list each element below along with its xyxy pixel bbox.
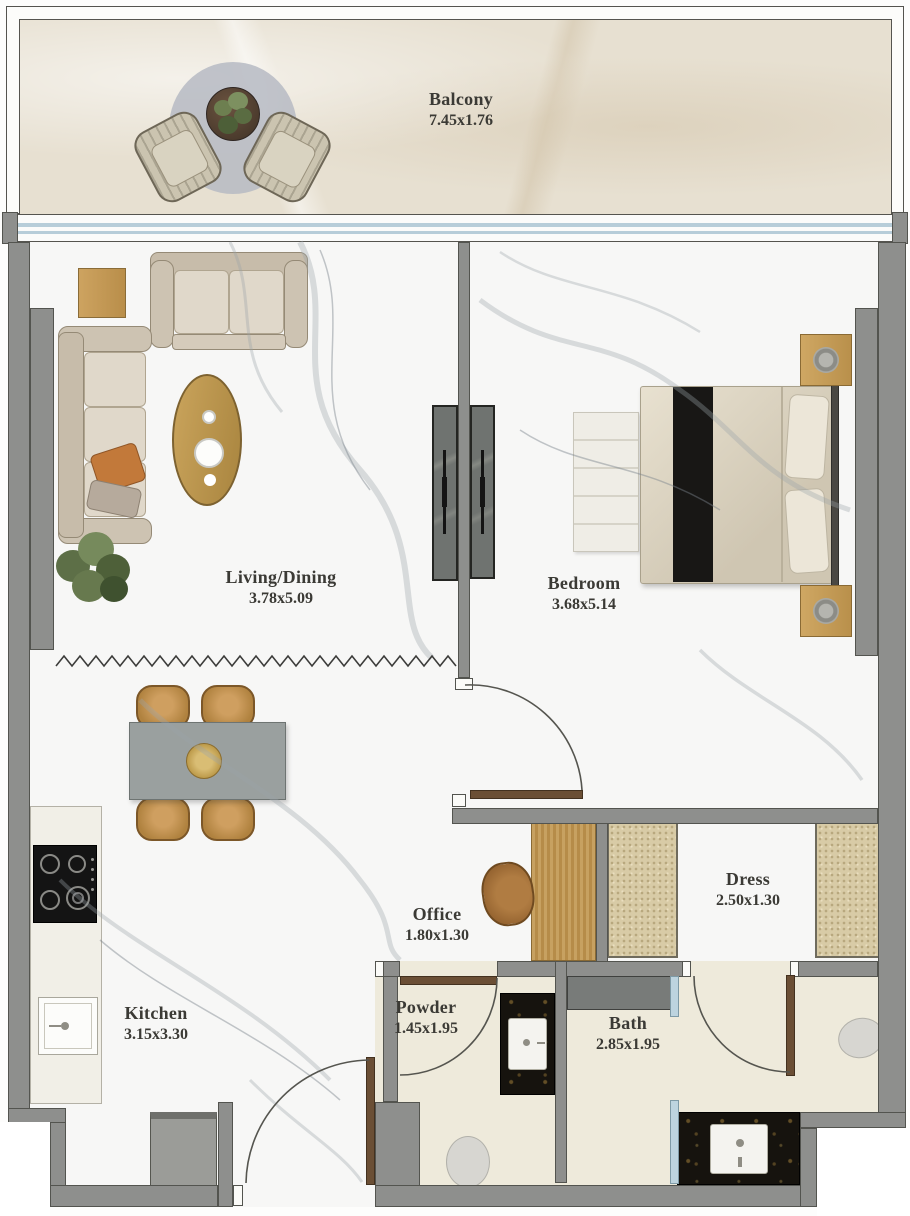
wall-office-right: [596, 823, 608, 963]
bedroom-door-leaf: [470, 790, 583, 799]
office-desk: [531, 823, 596, 961]
side-table: [78, 268, 126, 318]
nightstand: [800, 585, 852, 637]
door-jamb: [233, 1185, 243, 1206]
room-label-powder: Powder 1.45x1.95: [394, 996, 458, 1040]
wall-bedroom-bottom: [452, 808, 878, 824]
window-post-left: [2, 212, 18, 244]
refrigerator: [150, 1112, 217, 1187]
room-label-dress: Dress 2.50x1.30: [716, 868, 780, 912]
bed-sheet-fold: [781, 387, 783, 582]
glazing-line: [18, 231, 892, 235]
glazing-line: [18, 223, 892, 227]
table-centerpiece: [186, 743, 222, 779]
room-name: Balcony: [429, 88, 493, 111]
room-name: Kitchen: [124, 1002, 188, 1025]
room-name: Bedroom: [548, 572, 621, 595]
wall-wc-top-a: [383, 961, 400, 977]
toilet: [446, 1136, 490, 1188]
room-label-bath: Bath 2.85x1.95: [596, 1012, 660, 1056]
bath-sink: [710, 1124, 768, 1174]
plant: [56, 532, 132, 604]
dining-chair: [201, 797, 255, 841]
wardrobe-handle: [480, 477, 485, 507]
entry-door-leaf: [366, 1057, 375, 1185]
nightstand: [800, 334, 852, 386]
coffee-table: [172, 374, 242, 506]
window-band: [18, 214, 892, 242]
bath-service-block: [567, 976, 671, 1010]
pillow: [784, 394, 830, 481]
wall-end-cap: [455, 678, 473, 690]
wall-bottom-right-step-h: [800, 1112, 906, 1128]
room-dims: 1.45x1.95: [394, 1019, 458, 1040]
pillow: [784, 488, 830, 575]
cooktop: [33, 845, 97, 923]
wall-divider-living-bedroom: [458, 242, 470, 678]
exterior-cutout: [0, 1122, 50, 1216]
room-dims: 7.45x1.76: [429, 111, 493, 132]
room-label-bedroom: Bedroom 3.68x5.14: [548, 572, 621, 616]
wall-wc-top-c: [790, 961, 878, 977]
dress-closet: [815, 822, 885, 958]
dress-closet: [607, 822, 678, 958]
table-lamp: [813, 347, 839, 373]
room-label-kitchen: Kitchen 3.15x3.30: [124, 1002, 188, 1046]
sofa: [58, 326, 152, 544]
bed-runner: [673, 387, 713, 582]
room-dims: 2.85x1.95: [596, 1035, 660, 1056]
wall-left-step-v: [50, 1122, 66, 1194]
wall-wc-top-b: [497, 961, 690, 977]
loveseat: [150, 252, 308, 352]
room-name: Living/Dining: [226, 566, 337, 589]
room-label-balcony: Balcony 7.45x1.76: [429, 88, 493, 132]
room-name: Office: [405, 903, 469, 926]
wall-left-step-h: [8, 1108, 66, 1123]
wall-left-pilaster: [30, 308, 54, 650]
bath-door-leaf: [786, 975, 795, 1076]
room-dims: 1.80x1.30: [405, 926, 469, 947]
floor-plan: Balcony 7.45x1.76: [0, 0, 910, 1216]
room-dims: 3.78x5.09: [226, 589, 337, 610]
dining-chair: [136, 797, 190, 841]
room-dims: 2.50x1.30: [716, 891, 780, 912]
dining-table: [129, 722, 286, 800]
room-name: Powder: [394, 996, 458, 1019]
powder-door-leaf: [400, 976, 497, 985]
window-post-right: [892, 212, 908, 244]
powder-sink: [508, 1018, 547, 1070]
kitchen-sink: [38, 997, 98, 1055]
wall-right-pilaster: [855, 308, 878, 656]
shower-glass-panel: [670, 1100, 679, 1184]
wall-bottom-left: [50, 1185, 218, 1207]
wall-end-cap: [452, 794, 466, 807]
wardrobe-handle: [442, 477, 447, 507]
table-lamp: [813, 598, 839, 624]
wall-left: [8, 242, 30, 1122]
bed-bench: [573, 412, 639, 552]
bed: [640, 386, 833, 584]
wall-right: [878, 242, 906, 1128]
shower-glass-panel: [670, 976, 679, 1017]
headboard: [831, 384, 839, 586]
exterior-cutout: [817, 1128, 910, 1216]
wall-bottom-right-step-v: [800, 1128, 817, 1207]
room-dims: 3.68x5.14: [548, 595, 621, 616]
wall-bottom-right: [375, 1185, 817, 1207]
room-label-office: Office 1.80x1.30: [405, 903, 469, 947]
wall-powder-bath-divider: [555, 961, 567, 1183]
door-jamb: [682, 961, 691, 977]
room-dims: 3.15x3.30: [124, 1025, 188, 1046]
wall-entry-stub: [218, 1102, 233, 1207]
room-name: Dress: [716, 868, 780, 891]
room-label-living: Living/Dining 3.78x5.09: [226, 566, 337, 610]
balcony-plant: [210, 92, 256, 136]
room-name: Bath: [596, 1012, 660, 1035]
